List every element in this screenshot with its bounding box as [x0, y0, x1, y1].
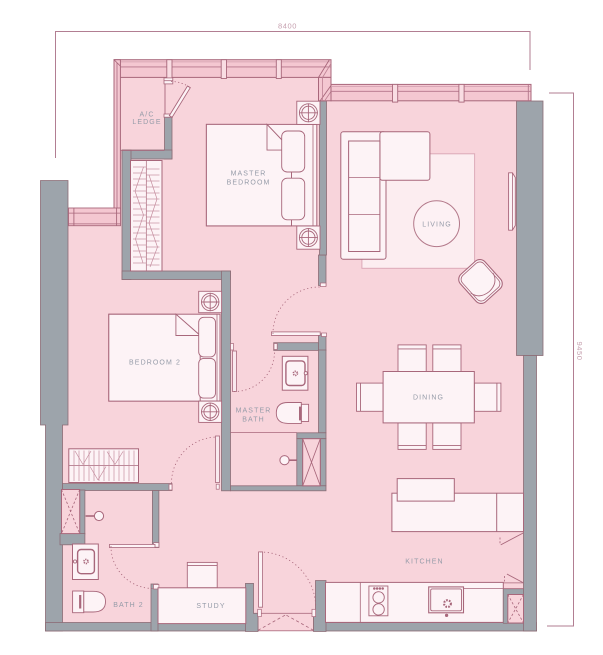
svg-text:DINING: DINING — [413, 395, 444, 402]
svg-text:MASTER: MASTER — [236, 408, 272, 415]
svg-text:9450: 9450 — [575, 341, 584, 360]
svg-text:BEDROOM: BEDROOM — [227, 180, 271, 187]
svg-text:BEDROOM 2: BEDROOM 2 — [129, 360, 181, 367]
svg-text:LIVING: LIVING — [422, 222, 452, 229]
svg-text:MASTER: MASTER — [231, 171, 267, 178]
svg-text:BATH: BATH — [242, 417, 265, 424]
svg-text:A/C: A/C — [140, 112, 155, 119]
svg-text:KITCHEN: KITCHEN — [405, 559, 443, 566]
svg-text:LEDGE: LEDGE — [132, 119, 161, 126]
svg-text:BATH 2: BATH 2 — [113, 602, 144, 609]
svg-text:STUDY: STUDY — [196, 603, 225, 610]
svg-text:8400: 8400 — [278, 22, 297, 31]
